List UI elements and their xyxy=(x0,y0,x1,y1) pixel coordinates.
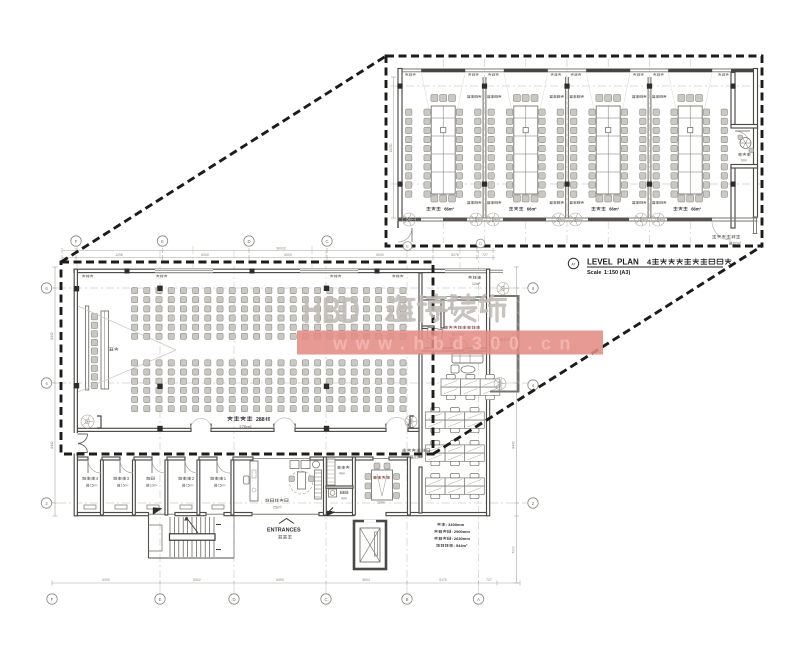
svg-text:15m²: 15m² xyxy=(90,484,99,488)
svg-text:10m²: 10m² xyxy=(150,484,159,488)
svg-text:5175: 5175 xyxy=(439,578,447,582)
svg-text:66m²: 66m² xyxy=(609,207,619,212)
svg-text:9m²: 9m² xyxy=(741,159,748,163)
svg-text:12m²: 12m² xyxy=(377,501,386,505)
svg-text:8442: 8442 xyxy=(512,441,516,449)
svg-text:: 2900mm: : 2900mm xyxy=(451,529,470,534)
svg-text:B: B xyxy=(406,597,409,602)
svg-text:1298: 1298 xyxy=(115,253,123,257)
svg-text:15m²: 15m² xyxy=(121,484,130,488)
svg-text:4m²: 4m² xyxy=(341,497,348,501)
svg-text:6000: 6000 xyxy=(376,253,384,257)
svg-text:12m²: 12m² xyxy=(472,282,481,286)
svg-text:16200: 16200 xyxy=(389,143,393,152)
svg-text:HBD: HBD xyxy=(303,290,360,331)
svg-text:www.hbd300.cn: www.hbd300.cn xyxy=(332,334,579,354)
svg-text:6000: 6000 xyxy=(201,253,209,257)
svg-text:62m²: 62m² xyxy=(733,242,742,246)
svg-text:66m²: 66m² xyxy=(444,207,454,212)
svg-text:6090: 6090 xyxy=(276,578,284,582)
svg-text:7000: 7000 xyxy=(512,546,516,554)
svg-text:ENTRANCES: ENTRANCES xyxy=(267,528,301,534)
svg-text:F: F xyxy=(51,597,54,602)
svg-text:727: 727 xyxy=(482,253,488,257)
svg-text:727: 727 xyxy=(486,578,492,582)
svg-text:Scale: Scale xyxy=(587,270,601,276)
svg-text:D: D xyxy=(479,242,482,246)
svg-text:6000: 6000 xyxy=(284,253,292,257)
svg-text:A7: A7 xyxy=(572,262,576,266)
svg-text:A: A xyxy=(477,597,480,602)
svg-text:C: C xyxy=(324,597,327,602)
svg-text:D: D xyxy=(232,597,235,602)
svg-text:E: E xyxy=(161,239,164,244)
svg-text:6090: 6090 xyxy=(102,578,110,582)
svg-text:8442: 8442 xyxy=(50,441,54,449)
svg-text:C: C xyxy=(325,239,328,244)
svg-text:E: E xyxy=(159,597,162,602)
svg-text:5694: 5694 xyxy=(362,578,370,582)
svg-text:5502: 5502 xyxy=(193,578,201,582)
svg-text:1:150 (A3): 1:150 (A3) xyxy=(604,270,630,276)
svg-text:15m²: 15m² xyxy=(218,484,227,488)
svg-text:D: D xyxy=(247,239,250,244)
svg-text:62m²: 62m² xyxy=(414,456,423,460)
svg-text:: 2630mm: : 2630mm xyxy=(451,536,470,541)
svg-text:66m²: 66m² xyxy=(527,207,537,212)
svg-text:30002: 30002 xyxy=(276,247,286,251)
svg-text:288: 288 xyxy=(256,417,265,423)
svg-text:15m²: 15m² xyxy=(186,484,195,488)
svg-text:5276: 5276 xyxy=(451,253,459,257)
svg-text:25m²: 25m² xyxy=(273,506,282,510)
svg-text:4m²: 4m² xyxy=(339,472,346,476)
svg-text:: 544m²: : 544m² xyxy=(453,543,468,548)
svg-text:PLAN: PLAN xyxy=(617,258,639,267)
svg-text:LEVEL: LEVEL xyxy=(587,258,613,267)
svg-text:F: F xyxy=(75,239,78,244)
svg-text:8442: 8442 xyxy=(50,332,54,340)
svg-text:66m²: 66m² xyxy=(691,207,701,212)
svg-text:: 3400mm: : 3400mm xyxy=(446,522,465,527)
svg-text:270m²: 270m² xyxy=(239,425,252,430)
